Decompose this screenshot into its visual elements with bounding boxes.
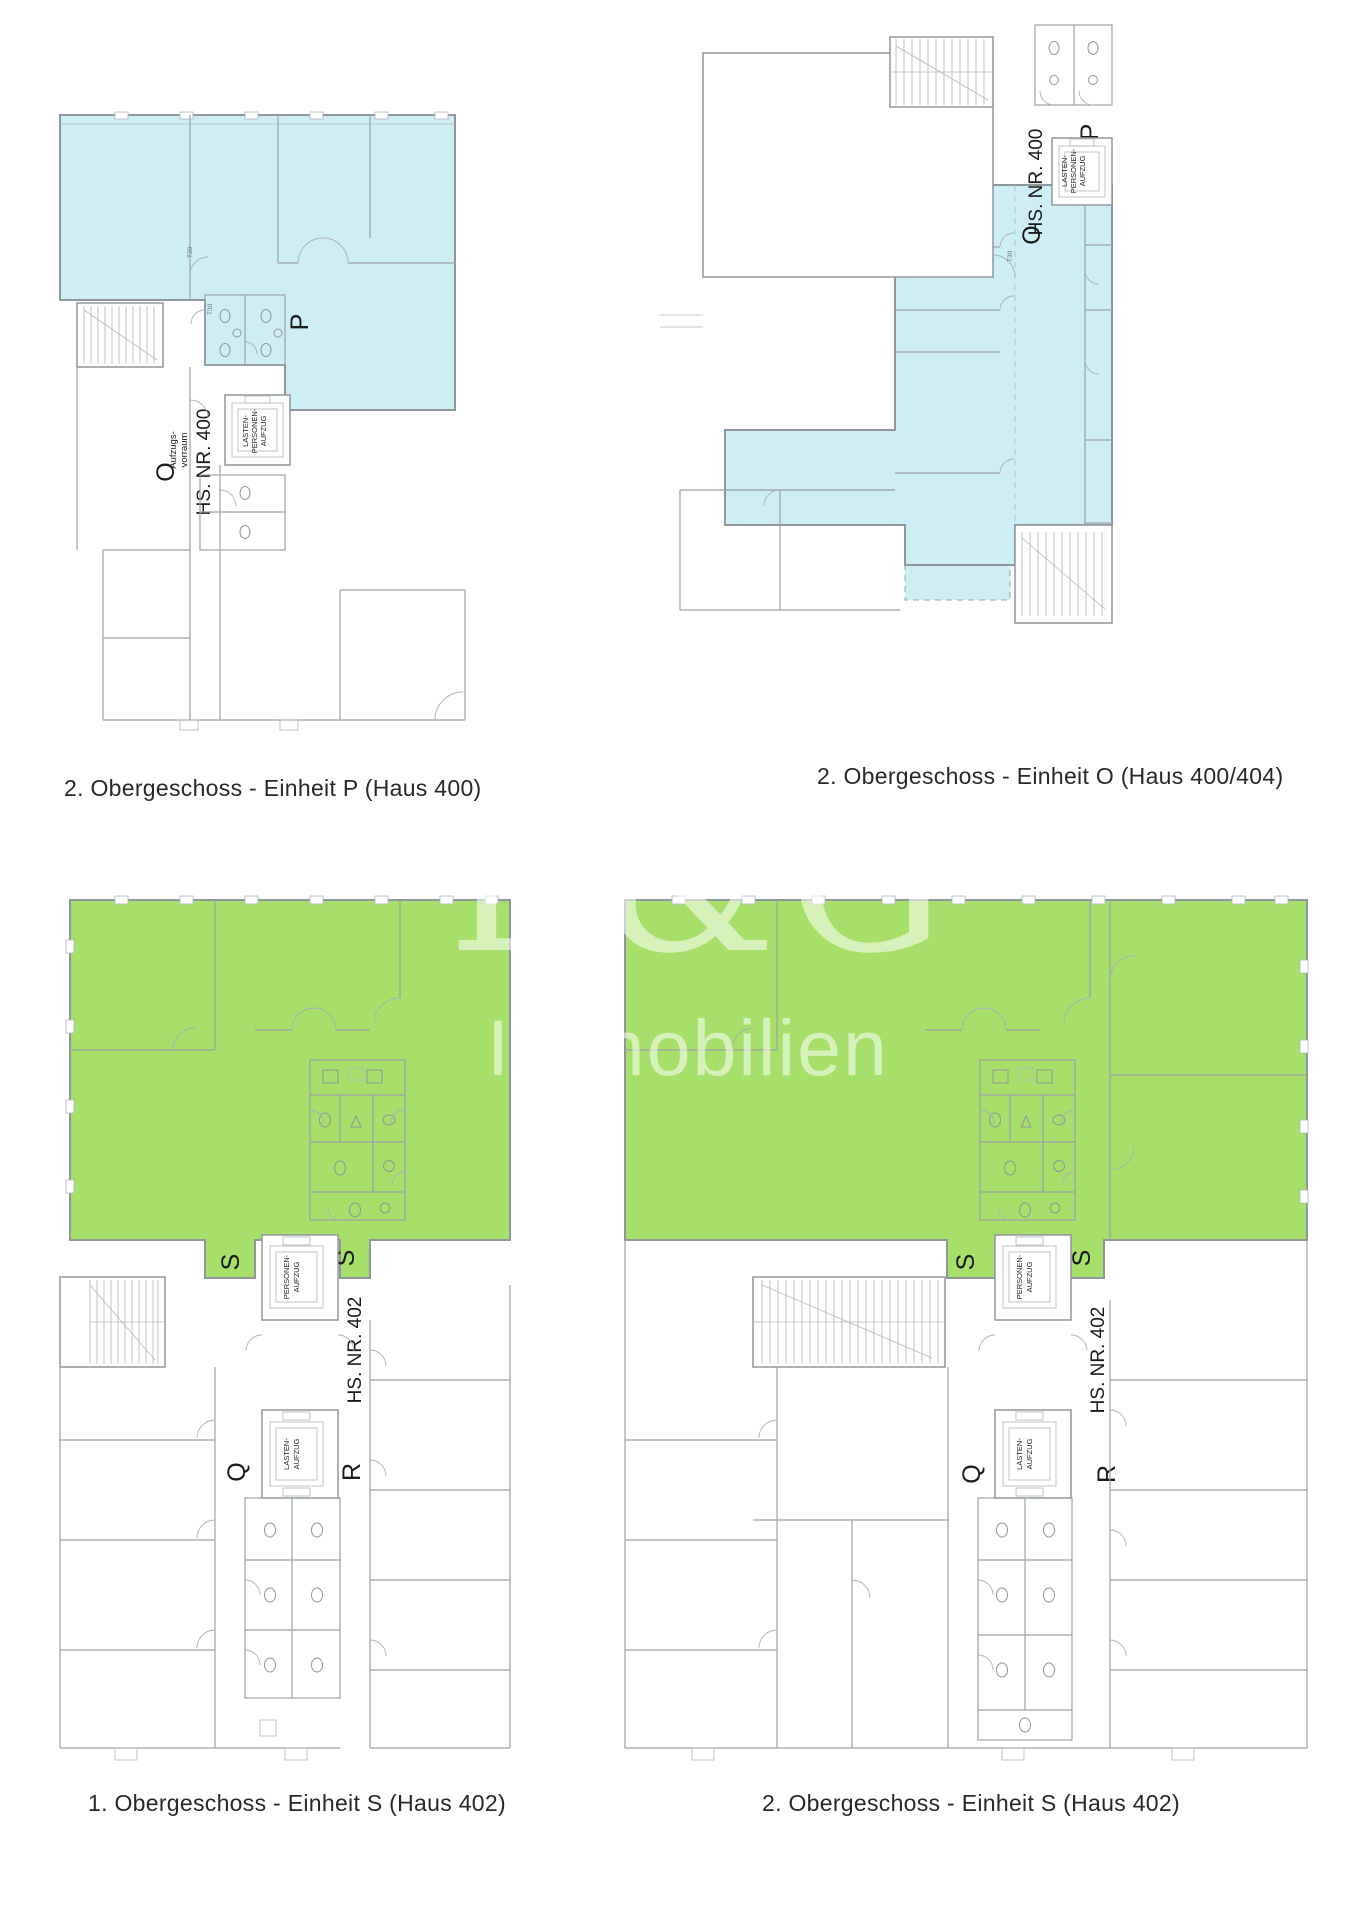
floor-plan-einheit-o-drawing: T30 HS. NR. 400 P LASTEN- PERSONEN- AUFZ… [660,20,1120,650]
door-label-t30: T30 [207,303,214,315]
floor-plan-einheit-p: T30 T30 LASTEN- PERSONEN- AUFZUG Aufzugs… [40,20,515,765]
freight-passenger-elevator: LASTEN- PERSONEN- AUFZUG [225,395,290,465]
unit-label-q: Q [223,1462,251,1481]
elevator-label: PERSONEN- [1069,148,1078,193]
wc-stack [245,1498,340,1698]
floor-plan-einheit-p-drawing: T30 T30 LASTEN- PERSONEN- AUFZUG Aufzugs… [40,20,515,765]
elevator-label: PERSONEN- [1015,1254,1024,1299]
unit-label-s: S [217,1254,245,1271]
elevator-label: LASTEN- [282,1438,291,1470]
stairwell [60,1277,165,1367]
unit-label-o: O [152,462,180,481]
house-number-label: HS. NR. 400 [1026,129,1047,236]
stairwell [77,303,163,367]
unit-label-s: S [952,1254,980,1271]
elevator-label: AUFZUG [1025,1261,1034,1292]
house-number-label: HS. NR. 402 [345,1297,366,1404]
wc-stack [978,1498,1072,1740]
elevator-label: AUFZUG [259,415,268,446]
elevator-label: LASTEN- [241,415,250,447]
unit-label-s: S [1068,1250,1096,1267]
elevator-label: AUFZUG [292,1261,301,1292]
plan-caption-einheit-o: 2. Obergeschoss - Einheit O (Haus 400/40… [817,763,1283,790]
plan-caption-einheit-s-2og: 2. Obergeschoss - Einheit S (Haus 402) [762,1790,1180,1817]
unit-label-p: P [286,314,314,331]
wc-rooms [1035,25,1112,105]
unit-label-r: R [338,1463,366,1481]
floor-plan-einheit-s-1og-drawing: S S PERSONEN- AUFZUG HS. NR. 402 Q R LAS… [55,880,515,1770]
elevator-label: AUFZUG [1025,1438,1034,1469]
passenger-elevator: PERSONEN- AUFZUG [262,1235,338,1320]
elevator-label: AUFZUG [292,1438,301,1469]
highlight-unit-s [625,900,1307,1278]
elevator-label: PERSONEN- [250,408,259,453]
freight-elevator: LASTEN- AUFZUG [262,1410,338,1498]
highlight-unit-s [70,900,510,1278]
elevator-label: LASTEN- [1015,1438,1024,1470]
stairwell [753,1277,945,1367]
plan-caption-einheit-s-1og: 1. Obergeschoss - Einheit S (Haus 402) [88,1790,506,1817]
corridor [948,1335,1087,1748]
freight-elevator: LASTEN- AUFZUG [995,1410,1071,1498]
elevator-label: LASTEN- [1060,155,1069,187]
unit-label-r: R [1093,1465,1121,1483]
elevator-label: AUFZUG [1078,155,1087,186]
floor-plan-einheit-o: T30 HS. NR. 400 P LASTEN- PERSONEN- AUFZ… [660,20,1120,650]
anteroom-label: vorraum [179,432,190,467]
plan-caption-einheit-p: 2. Obergeschoss - Einheit P (Haus 400) [64,775,482,802]
passenger-elevator: PERSONEN- AUFZUG [995,1235,1071,1320]
floor-plan-einheit-s-2og: S S PERSONEN- AUFZUG HS. NR. 402 Q R LAS… [612,880,1312,1770]
freight-passenger-elevator: LASTEN- PERSONEN- AUFZUG [1052,138,1112,205]
door-label-t30: T30 [187,246,194,258]
house-number-label: HS. NR. 402 [1088,1307,1109,1414]
corridor [215,1335,354,1748]
door-label-t30: T30 [1007,250,1014,262]
elevator-label: PERSONEN- [282,1254,291,1299]
floor-plan-einheit-s-1og: S S PERSONEN- AUFZUG HS. NR. 402 Q R LAS… [55,880,515,1770]
lower-rooms [625,1240,1307,1760]
floor-plan-einheit-s-2og-drawing: S S PERSONEN- AUFZUG HS. NR. 402 Q R LAS… [612,880,1312,1770]
unit-label-q: Q [958,1464,986,1483]
house-number-label: HS. NR. 400 [194,409,215,516]
unit-label-o: O [1018,225,1046,244]
